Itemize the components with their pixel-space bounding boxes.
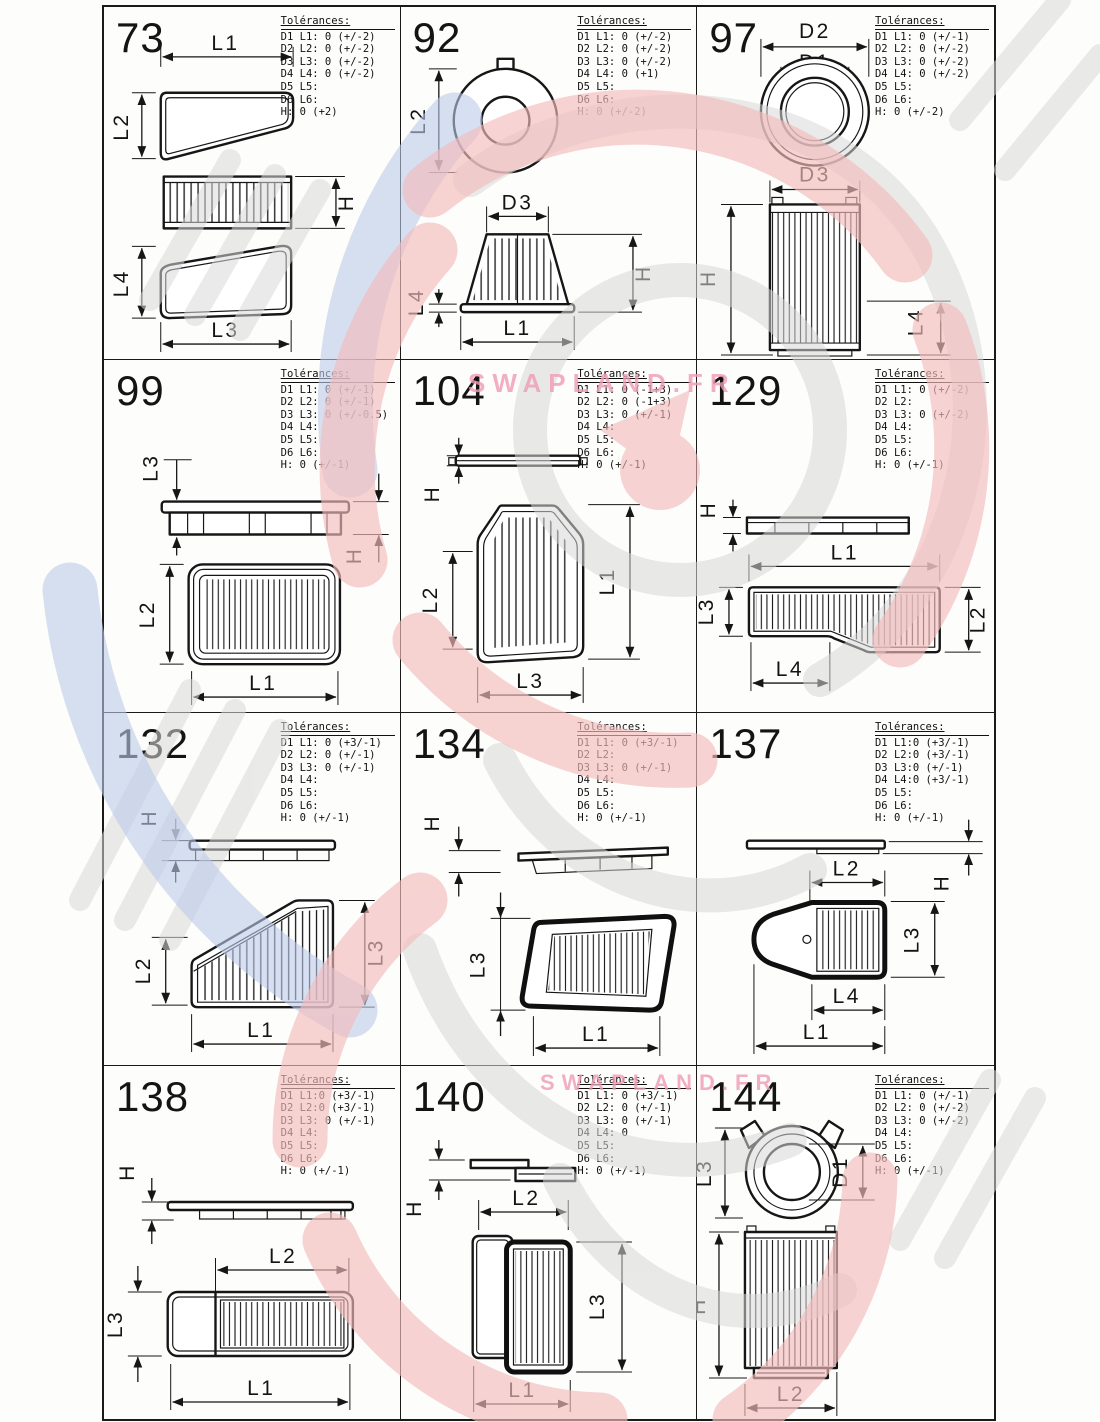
tolerance-table: Tolérances: D1 L1: 0 (+3/-1) D2 L2: D3 L… <box>577 721 691 825</box>
tolerance-title: Tolérances: <box>577 1074 691 1089</box>
dim-l2: L2 <box>419 551 473 649</box>
dim-h: H <box>138 809 196 883</box>
side-view <box>745 1226 837 1378</box>
tolerance-row: D4 L4: <box>281 421 395 434</box>
tolerance-table: Tolérances: D1 L1:0 (+3/-1) D2 L2:0 (+3/… <box>875 721 989 825</box>
tolerance-title: Tolérances: <box>281 368 395 383</box>
tolerance-row: D2 L2: 0 (-1+3) <box>577 396 691 409</box>
tolerance-row: H: 0 (+/-1) <box>875 812 989 825</box>
tolerance-row: D6 L6: <box>577 447 691 460</box>
filter-cell-92: 92 Tolérances: D1 L1: 0 (+/-2) D2 L2: 0 … <box>401 7 698 360</box>
dim-h: H <box>697 204 773 355</box>
tolerance-row: D5 L5: <box>875 1140 989 1153</box>
dim-label-l2: L2 <box>777 1383 805 1406</box>
tolerance-table: Tolérances: D1 L1: 0 (+/-1) D2 L2: 0 (+/… <box>281 368 395 472</box>
tolerance-table: Tolérances: D1 L1: 0 (+3/-1) D2 L2: 0 (+… <box>577 1074 691 1178</box>
tolerance-row: D1 L1: 0 (+3/-1) <box>281 737 395 750</box>
tolerance-row: D1 L1: 0 (+/-1) <box>281 384 395 397</box>
dim-label-l2: L2 <box>269 1245 297 1268</box>
filter-number: 144 <box>709 1076 782 1118</box>
dim-l1: L1 <box>171 1364 350 1410</box>
dim-label-h: H <box>697 1297 710 1315</box>
tolerance-row: D3 L3: 0 (+/-0.5) <box>281 409 395 422</box>
tolerance-title: Tolérances: <box>875 15 989 30</box>
dim-label-l1: L1 <box>503 317 531 340</box>
dim-h: H <box>883 820 983 892</box>
dim-l1: L1 <box>460 316 573 350</box>
dim-label-d3: D3 <box>799 164 831 187</box>
dim-l1: L1 <box>161 32 293 67</box>
dim-label-h: H <box>931 874 954 892</box>
tolerance-row: D2 L2: 0 (+/-1) <box>281 396 395 409</box>
filter-number: 97 <box>709 17 758 59</box>
dim-label-l1: L1 <box>247 1019 275 1042</box>
cone-view <box>460 234 573 312</box>
dim-label-h: H <box>421 814 444 832</box>
dim-l4: L4 <box>812 984 885 1020</box>
tolerance-row: D2 L2: 0 (+/-2) <box>281 43 395 56</box>
dim-h: H <box>343 474 389 565</box>
top-view <box>168 1292 353 1356</box>
dim-label-h: H <box>335 194 358 212</box>
tolerance-row: D1 L1: 0 (+3/-1) <box>577 1090 691 1103</box>
main-view <box>754 902 885 977</box>
tolerance-row: D5 L5: <box>281 787 395 800</box>
tolerance-table: Tolérances: D1 L1:0 (+3/-1) D2 L2:0 (+3/… <box>281 1074 395 1178</box>
dim-l3: L3 <box>104 1266 162 1382</box>
tolerance-table: Tolérances: D1 L1: 0 (+3/-1) D2 L2: 0 (+… <box>281 721 395 825</box>
dim-label-l3: L3 <box>211 319 239 342</box>
dim-label-l3: L3 <box>365 938 388 966</box>
side-view <box>168 1202 353 1219</box>
side-view <box>164 177 291 229</box>
tolerance-row: D5 L5: <box>577 787 691 800</box>
top-view <box>477 506 583 663</box>
filter-number: 104 <box>413 370 486 412</box>
dim-label-h: H <box>343 547 366 565</box>
dim-h: H <box>403 1140 511 1217</box>
tolerance-row: D1 L1: 0 (+/-2) <box>875 384 989 397</box>
tolerance-row: D6 L6: <box>577 800 691 813</box>
side-view <box>448 456 586 466</box>
tolerance-title: Tolérances: <box>577 368 691 383</box>
tolerance-row: D3 L3: 0 (+/-2) <box>281 56 395 69</box>
tolerance-row: D3 L3: 0 (+/-1) <box>577 1115 691 1128</box>
dim-l4: L4 <box>405 288 457 327</box>
tolerance-row: D2 L2: 0 (+/-2) <box>577 43 691 56</box>
tolerance-row: D4 L4: 0 (+1) <box>577 68 691 81</box>
dim-d3: D3 <box>486 191 548 232</box>
top-view <box>453 59 557 173</box>
dim-label-l3: L3 <box>697 597 718 625</box>
dim-l3: L3 <box>466 892 530 1036</box>
tolerance-title: Tolérances: <box>281 15 395 30</box>
dim-label-h: H <box>697 269 720 287</box>
tolerance-row: D6 L6: <box>875 1153 989 1166</box>
dim-h: H <box>697 500 741 552</box>
dim-label-l2: L2 <box>132 956 155 984</box>
top-view <box>161 93 293 160</box>
dim-l4: L4 <box>751 642 830 691</box>
side-view <box>747 518 909 534</box>
dim-label-l4: L4 <box>110 269 133 297</box>
dim-l3: L3 <box>697 1128 743 1218</box>
tolerance-title: Tolérances: <box>875 368 989 383</box>
tolerance-table: Tolérances: D1 L1: 0 (+/-2) D2 L2: 0 (+/… <box>281 15 395 119</box>
filter-cell-97: 97 Tolérances: D1 L1: 0 (+/-1) D2 L2: 0 … <box>697 7 994 360</box>
dim-label-l4: L4 <box>833 985 861 1008</box>
dim-h: H <box>697 1232 747 1378</box>
tolerance-row: D4 L4: <box>875 1127 989 1140</box>
tolerance-row: H: 0 (+/-2) <box>875 106 989 119</box>
tolerance-row: D1 L1: 0 (+/-1) <box>875 31 989 44</box>
filter-cell-99: 99 Tolérances: D1 L1: 0 (+/-1) D2 L2: 0 … <box>104 360 401 713</box>
dim-label-l1: L1 <box>803 1021 831 1044</box>
dim-label-d2: D2 <box>799 20 831 43</box>
dim-label-l3: L3 <box>586 1292 609 1320</box>
tolerance-row: D1 L1:0 (+3/-1) <box>875 737 989 750</box>
tolerance-row: D6 L6: <box>875 800 989 813</box>
tolerance-row: D4 L4: <box>281 1127 395 1140</box>
dim-label-l1: L1 <box>596 567 619 595</box>
top-view <box>189 564 340 664</box>
tolerance-row: D5 L5: <box>281 434 395 447</box>
side-view <box>747 841 885 854</box>
filter-number: 137 <box>709 723 782 765</box>
tolerance-title: Tolérances: <box>577 15 691 30</box>
filter-cell-137: 137 Tolérances: D1 L1:0 (+3/-1) D2 L2:0 … <box>697 713 994 1066</box>
dim-label-l3: L3 <box>140 454 163 482</box>
tolerance-row: D5 L5: <box>875 81 989 94</box>
side-view <box>770 197 860 356</box>
dim-label-l2: L2 <box>407 107 430 135</box>
top-view <box>749 587 940 652</box>
tolerance-row: D4 L4: <box>875 421 989 434</box>
dim-label-d3: D3 <box>501 191 533 214</box>
tolerance-row: H: 0 (+/-1) <box>577 812 691 825</box>
tolerance-row: H: 0 (+2) <box>281 106 395 119</box>
tolerance-row: H: 0 (+/-1) <box>281 812 395 825</box>
tolerance-row: D1 L1: 0 (+/-1) <box>875 1090 989 1103</box>
tolerance-row: H: 0 (+/-1) <box>281 459 395 472</box>
dim-label-l3: L3 <box>466 950 489 978</box>
dim-label-l1: L1 <box>831 541 859 564</box>
tolerance-row: H: 0 (+/-1) <box>577 459 691 472</box>
tolerance-row: H: 0 (+/-1) <box>875 459 989 472</box>
dim-label-l3: L3 <box>697 1159 716 1187</box>
dim-l1: L1 <box>588 505 640 660</box>
dim-l3: L3 <box>477 667 583 703</box>
filter-number: 99 <box>116 370 165 412</box>
dim-label-l1: L1 <box>211 32 239 55</box>
side-view <box>518 848 667 874</box>
tolerance-table: Tolérances: D1 L1: 0 (+/-1) D2 L2: 0 (+/… <box>875 1074 989 1178</box>
tolerance-row: D1 L1: 0 (+3/-1) <box>577 737 691 750</box>
tolerance-row: D6 L6: <box>281 94 395 107</box>
dim-l2: L2 <box>136 564 184 664</box>
tolerance-row: D4 L4: <box>281 774 395 787</box>
top-view <box>522 916 674 1010</box>
dim-label-l3: L3 <box>104 1310 127 1338</box>
dim-l4: L4 <box>867 301 951 355</box>
top-view <box>741 1121 843 1218</box>
tolerance-row: D4 L4: 0 <box>577 1127 691 1140</box>
filter-cell-132: 132 Tolérances: D1 L1: 0 (+3/-1) D2 L2: … <box>104 713 401 1066</box>
dim-h: H <box>116 1163 174 1244</box>
filter-number: 92 <box>413 17 462 59</box>
tolerance-row: D4 L4: <box>577 421 691 434</box>
bottom-view <box>161 246 291 318</box>
dim-l3: L3 <box>697 587 743 636</box>
tolerance-row: D3 L3: 0 (+/-2) <box>875 1115 989 1128</box>
dim-h: H <box>421 814 501 897</box>
tolerance-row: H: 0 (+/-2) <box>577 106 691 119</box>
dim-l3: L3 <box>891 901 945 977</box>
tolerance-row: D1 L1: 0 (+/-2) <box>281 31 395 44</box>
tolerance-row: D6 L6: <box>577 94 691 107</box>
dim-l3: L3 <box>339 900 388 1007</box>
dim-l2: L2 <box>945 587 990 652</box>
tolerance-row: H: 0 (+/-1) <box>875 1165 989 1178</box>
tolerance-row: D2 L2:0 (+3/-1) <box>875 749 989 762</box>
dim-l3: L3 <box>161 319 291 352</box>
dim-label-l2: L2 <box>136 600 159 628</box>
dim-l1: L1 <box>749 541 940 581</box>
tolerance-row: D5 L5: <box>577 434 691 447</box>
tolerance-row: D4 L4:0 (+3/-1) <box>875 774 989 787</box>
filter-cell-140: 140 Tolérances: D1 L1: 0 (+3/-1) D2 L2: … <box>401 1066 698 1419</box>
tolerance-row: D2 L2: 0 (+/-1) <box>281 749 395 762</box>
tolerance-row: D3 L3: 0 (+/-2) <box>577 56 691 69</box>
tolerance-row: D6 L6: <box>577 1153 691 1166</box>
tolerance-row: D5 L5: <box>577 1140 691 1153</box>
tolerance-row: D4 L4: 0 (+/-2) <box>875 68 989 81</box>
top-view <box>192 900 333 1007</box>
tolerance-row: D3 L3: 0 (+/-2) <box>875 409 989 422</box>
dim-l2: L2 <box>110 93 156 159</box>
dim-l1: L1 <box>533 1016 659 1056</box>
dim-label-h: H <box>421 485 444 503</box>
tolerance-row: D6 L6: <box>875 94 989 107</box>
dim-label-l2: L2 <box>967 605 990 633</box>
tolerance-row: D6 L6: <box>281 447 395 460</box>
dim-label-l3: L3 <box>516 670 544 693</box>
tolerance-row: D1 L1: 0 (-1+3) <box>577 384 691 397</box>
tolerance-title: Tolérances: <box>281 721 395 736</box>
tolerance-row: D1 L1:0 (+3/-1) <box>281 1090 395 1103</box>
filter-cell-129: 129 Tolérances: D1 L1: 0 (+/-2) D2 L2: D… <box>697 360 994 713</box>
filter-cell-134: 134 Tolérances: D1 L1: 0 (+3/-1) D2 L2: … <box>401 713 698 1066</box>
dim-label-l4: L4 <box>405 288 428 316</box>
tolerance-row: D5 L5: <box>577 81 691 94</box>
tolerance-row: D2 L2: <box>577 749 691 762</box>
dim-label-l1: L1 <box>249 672 277 695</box>
dim-label-l2: L2 <box>110 113 133 141</box>
dim-l3: L3 <box>576 1242 632 1372</box>
dim-label-d1: D1 <box>829 1156 852 1188</box>
dim-l1: L1 <box>192 671 338 705</box>
tolerance-row: D6 L6: <box>281 800 395 813</box>
dim-l1: L1 <box>192 1014 333 1052</box>
filter-spec-grid: 73 Tolérances: D1 L1: 0 (+/-2) D2 L2: 0 … <box>102 5 996 1421</box>
dim-l4: L4 <box>110 246 156 318</box>
filter-number: 138 <box>116 1076 189 1118</box>
dim-label-h: H <box>138 809 161 827</box>
tolerance-row: D4 L4: <box>577 774 691 787</box>
dim-l2: L2 <box>132 937 188 1005</box>
tolerance-row: D6 L6: <box>875 447 989 460</box>
tolerance-title: Tolérances: <box>281 1074 395 1089</box>
tolerance-row: D5 L5: <box>281 81 395 94</box>
tolerance-table: Tolérances: D1 L1: 0 (+/-2) D2 L2: D3 L3… <box>875 368 989 472</box>
dim-label-l2: L2 <box>512 1187 540 1210</box>
filter-cell-73: 73 Tolérances: D1 L1: 0 (+/-2) D2 L2: 0 … <box>104 7 401 360</box>
dim-h: H <box>421 438 471 503</box>
tolerance-row: D3 L3: 0 (+/-2) <box>875 56 989 69</box>
side-view <box>190 841 335 861</box>
dim-label-l1: L1 <box>247 1377 275 1400</box>
filter-cell-104: 104 Tolérances: D1 L1: 0 (-1+3) D2 L2: 0… <box>401 360 698 713</box>
tolerance-row: H: 0 (+/-1) <box>577 1165 691 1178</box>
filter-number: 134 <box>413 723 486 765</box>
dim-label-l1: L1 <box>508 1379 536 1402</box>
tolerance-row: D2 L2: <box>875 396 989 409</box>
tolerance-row: D3 L3: 0 (+/-1) <box>577 762 691 775</box>
tolerance-table: Tolérances: D1 L1: 0 (+/-2) D2 L2: 0 (+/… <box>577 15 691 119</box>
filter-number: 140 <box>413 1076 486 1118</box>
tolerance-row: D5 L5: <box>875 787 989 800</box>
tolerance-row: D3 L3:0 (+/-1) <box>875 762 989 775</box>
side-view <box>470 1160 575 1181</box>
tolerance-title: Tolérances: <box>577 721 691 736</box>
tolerance-row: D5 L5: <box>875 434 989 447</box>
tolerance-row: D2 L2:0 (+3/-1) <box>281 1102 395 1115</box>
tolerance-title: Tolérances: <box>875 721 989 736</box>
tolerance-row: H: 0 (+/-1) <box>281 1165 395 1178</box>
tolerance-row: D3 L3: 0 (+/-1) <box>577 409 691 422</box>
dim-h: H <box>295 177 358 229</box>
filter-cell-138: 138 Tolérances: D1 L1:0 (+3/-1) D2 L2:0 … <box>104 1066 401 1419</box>
dim-label-h: H <box>116 1163 139 1181</box>
dim-l2: L2 <box>478 1187 568 1230</box>
top-view <box>761 58 869 166</box>
main-view <box>472 1236 570 1372</box>
dim-label-h: H <box>697 501 720 519</box>
dim-label-l2: L2 <box>419 585 442 613</box>
dim-label-l3: L3 <box>901 925 924 953</box>
tolerance-table: Tolérances: D1 L1: 0 (-1+3) D2 L2: 0 (-1… <box>577 368 691 472</box>
side-view <box>162 502 349 535</box>
filter-number: 129 <box>709 370 782 412</box>
filter-number: 132 <box>116 723 189 765</box>
dim-label-h: H <box>632 264 655 282</box>
filter-cell-144: 144 Tolérances: D1 L1: 0 (+/-1) D2 L2: 0… <box>697 1066 994 1419</box>
tolerance-row: D2 L2: 0 (+/-2) <box>875 43 989 56</box>
tolerance-row: D2 L2: 0 (+/-1) <box>577 1102 691 1115</box>
tolerance-table: Tolérances: D1 L1: 0 (+/-1) D2 L2: 0 (+/… <box>875 15 989 119</box>
dim-label-l2: L2 <box>833 858 861 881</box>
tolerance-row: D3 L3: 0 (+/-1) <box>281 762 395 775</box>
filter-number: 73 <box>116 17 165 59</box>
tolerance-row: D5 L5: <box>281 1140 395 1153</box>
tolerance-title: Tolérances: <box>875 1074 989 1089</box>
tolerance-row: D3 L3: 0 (+/-1) <box>281 1115 395 1128</box>
dim-label-h: H <box>403 1199 426 1217</box>
dim-label-l1: L1 <box>582 1023 610 1046</box>
dim-l2: L2 <box>407 69 457 173</box>
tolerance-row: D2 L2: 0 (+/-2) <box>875 1102 989 1115</box>
dim-d3: D3 <box>770 164 860 203</box>
tolerance-row: D4 L4: 0 (+/-2) <box>281 68 395 81</box>
dim-label-l4: L4 <box>776 658 804 681</box>
tolerance-row: D1 L1: 0 (+/-2) <box>577 31 691 44</box>
tolerance-row: D6 L6: <box>281 1153 395 1166</box>
dim-label-l4: L4 <box>905 308 928 336</box>
